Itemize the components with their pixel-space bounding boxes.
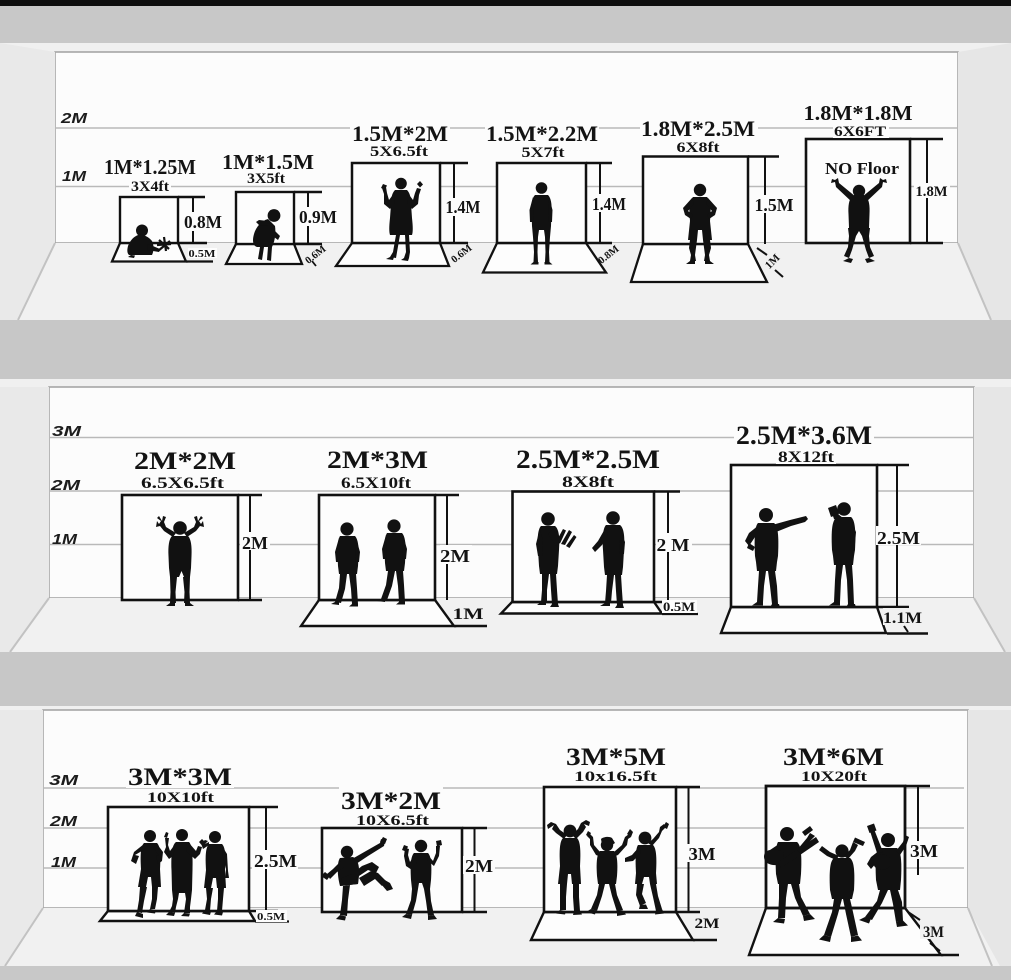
svg-text:2.5M: 2.5M bbox=[877, 528, 920, 548]
svg-text:3M*5M: 3M*5M bbox=[566, 744, 666, 771]
svg-text:2M: 2M bbox=[440, 546, 470, 566]
svg-text:2M: 2M bbox=[242, 533, 268, 553]
svg-text:3M: 3M bbox=[52, 423, 82, 440]
svg-text:3M*3M: 3M*3M bbox=[128, 764, 232, 791]
svg-text:3X5ft: 3X5ft bbox=[247, 171, 285, 187]
svg-text:2M: 2M bbox=[465, 856, 493, 876]
svg-text:2M: 2M bbox=[50, 477, 81, 494]
svg-text:2.5M: 2.5M bbox=[254, 851, 297, 871]
svg-text:2M: 2M bbox=[695, 916, 720, 932]
svg-text:6.5X10ft: 6.5X10ft bbox=[341, 475, 412, 492]
svg-text:0.5M: 0.5M bbox=[663, 600, 695, 614]
svg-text:1.5M*2M: 1.5M*2M bbox=[352, 121, 448, 146]
svg-text:1.5M: 1.5M bbox=[755, 195, 794, 215]
svg-text:1M*1.25M: 1M*1.25M bbox=[104, 155, 196, 179]
svg-text:0.8M: 0.8M bbox=[184, 212, 222, 232]
svg-text:6X8ft: 6X8ft bbox=[677, 140, 720, 156]
svg-text:8X12ft: 8X12ft bbox=[778, 449, 835, 466]
svg-text:5X7ft: 5X7ft bbox=[522, 145, 565, 161]
svg-text:0.5M: 0.5M bbox=[257, 911, 286, 923]
svg-text:3M*6M: 3M*6M bbox=[783, 744, 884, 771]
svg-text:1.8M*2.5M: 1.8M*2.5M bbox=[641, 116, 755, 141]
svg-text:2M*2M: 2M*2M bbox=[134, 448, 236, 475]
svg-text:6.5X6.5ft: 6.5X6.5ft bbox=[141, 475, 225, 492]
svg-text:2.5M*2.5M: 2.5M*2.5M bbox=[516, 445, 660, 474]
svg-text:10x16.5ft: 10x16.5ft bbox=[574, 769, 657, 785]
svg-text:10X6.5ft: 10X6.5ft bbox=[356, 813, 429, 829]
svg-text:3M: 3M bbox=[923, 924, 944, 941]
svg-text:1M: 1M bbox=[62, 168, 87, 185]
svg-text:1.4M: 1.4M bbox=[592, 194, 626, 214]
svg-text:0.5M: 0.5M bbox=[189, 248, 217, 260]
svg-text:1.5M*2.2M: 1.5M*2.2M bbox=[486, 121, 598, 146]
svg-text:3M: 3M bbox=[689, 844, 716, 864]
svg-text:2 M: 2 M bbox=[657, 535, 690, 555]
svg-text:2M: 2M bbox=[49, 813, 78, 830]
svg-text:2.5M*3.6M: 2.5M*3.6M bbox=[736, 421, 872, 450]
svg-text:3M: 3M bbox=[910, 841, 938, 861]
svg-text:1.8M*1.8M: 1.8M*1.8M bbox=[804, 101, 913, 125]
svg-text:8X8ft: 8X8ft bbox=[562, 474, 615, 491]
svg-text:6X6FT: 6X6FT bbox=[834, 124, 886, 140]
svg-text:3X4ft: 3X4ft bbox=[131, 179, 169, 195]
svg-text:NO Floor: NO Floor bbox=[825, 159, 899, 178]
svg-text:2M*3M: 2M*3M bbox=[327, 447, 428, 474]
svg-text:3M*2M: 3M*2M bbox=[341, 788, 441, 815]
svg-text:1M: 1M bbox=[52, 531, 78, 548]
svg-text:2M: 2M bbox=[60, 110, 88, 127]
svg-text:0.9M: 0.9M bbox=[299, 207, 337, 227]
svg-text:1.8M: 1.8M bbox=[916, 184, 948, 200]
svg-text:1M: 1M bbox=[453, 606, 484, 623]
svg-text:1M: 1M bbox=[51, 854, 77, 871]
svg-text:1.4M: 1.4M bbox=[446, 197, 481, 217]
svg-text:10X10ft: 10X10ft bbox=[147, 790, 214, 806]
svg-text:5X6.5ft: 5X6.5ft bbox=[370, 144, 428, 160]
svg-text:1.1M: 1.1M bbox=[883, 610, 922, 627]
svg-text:10X20ft: 10X20ft bbox=[801, 769, 867, 785]
svg-text:3M: 3M bbox=[49, 772, 79, 789]
